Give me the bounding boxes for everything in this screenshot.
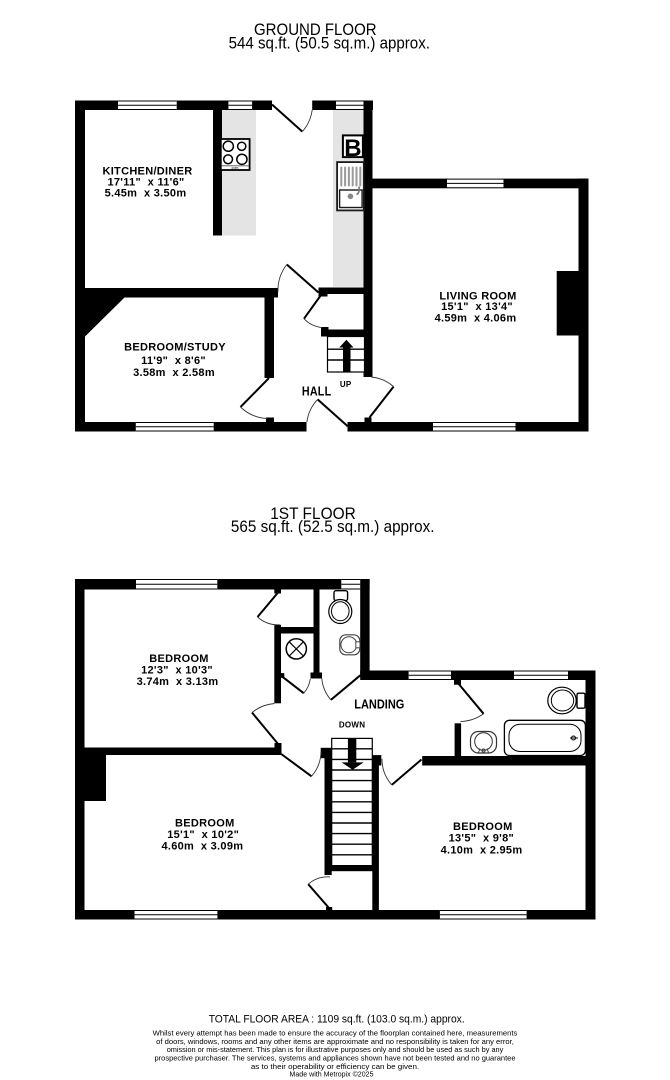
svg-text:HALL: HALL: [302, 383, 332, 398]
svg-text:12'3" x 10'3": 12'3" x 10'3": [141, 665, 213, 677]
svg-text:B: B: [344, 135, 361, 162]
svg-text:3.58m x 2.58m: 3.58m x 2.58m: [133, 367, 215, 379]
svg-text:BEDROOM: BEDROOM: [453, 821, 513, 833]
svg-text:BEDROOM/STUDY: BEDROOM/STUDY: [124, 342, 226, 354]
svg-text:5.45m x 3.50m: 5.45m x 3.50m: [105, 187, 187, 199]
svg-text:4.60m x 3.09m: 4.60m x 3.09m: [161, 841, 243, 853]
svg-text:LANDING: LANDING: [354, 696, 404, 711]
svg-text:4.10m x 2.95m: 4.10m x 2.95m: [441, 844, 523, 856]
svg-text:544 sq.ft. (50.5 sq.m.) approx: 544 sq.ft. (50.5 sq.m.) approx.: [229, 34, 430, 53]
svg-text:11'9" x 8'6": 11'9" x 8'6": [141, 355, 206, 367]
svg-text:oven: oven: [232, 166, 239, 170]
svg-text:13'5" x 9'8": 13'5" x 9'8": [449, 832, 514, 844]
svg-text:Made with Metropix ©2025: Made with Metropix ©2025: [290, 1070, 374, 1079]
svg-text:15'1" x 13'4": 15'1" x 13'4": [441, 301, 513, 313]
svg-text:15'1" x 10'2": 15'1" x 10'2": [167, 829, 239, 841]
svg-text:BEDROOM: BEDROOM: [175, 818, 235, 830]
svg-text:DOWN: DOWN: [339, 721, 366, 730]
svg-text:TOTAL FLOOR AREA : 1109 sq.ft.: TOTAL FLOOR AREA : 1109 sq.ft. (103.0 sq…: [209, 1014, 465, 1026]
svg-text:UP: UP: [340, 380, 352, 389]
svg-text:4.59m x 4.06m: 4.59m x 4.06m: [435, 312, 517, 324]
svg-text:3.74m x 3.13m: 3.74m x 3.13m: [137, 676, 219, 688]
svg-text:565 sq.ft. (52.5 sq.m.) approx: 565 sq.ft. (52.5 sq.m.) approx.: [231, 517, 435, 536]
svg-text:BEDROOM: BEDROOM: [149, 653, 209, 665]
